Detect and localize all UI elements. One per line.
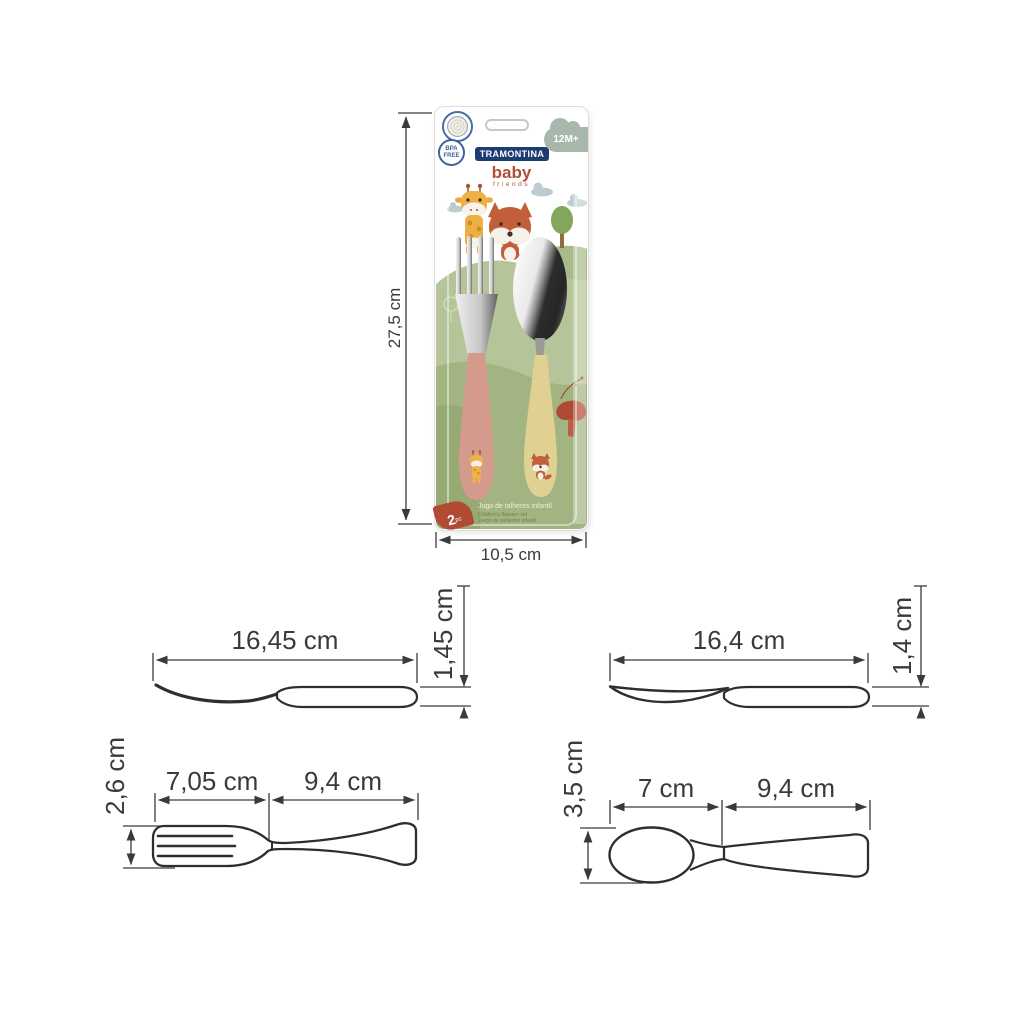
fork-handle-length-label: 9,4 cm (304, 766, 382, 796)
spoon-bowl-length-label: 7 cm (638, 773, 694, 803)
spoon-top-neck-bottom (690, 859, 724, 870)
package-dimensions (398, 113, 586, 548)
spoon-length-label: 16,4 cm (693, 625, 786, 655)
fork-top-outline (153, 823, 416, 866)
fork-side-view: 16,45 cm 1,45 cm (153, 586, 471, 714)
fork-thickness-label: 1,45 cm (428, 588, 458, 681)
package-height-label: 27,5 cm (385, 288, 404, 348)
spoon-side-bowl (610, 687, 728, 703)
fork-side-handle (277, 687, 417, 707)
fork-length-label: 16,45 cm (232, 625, 339, 655)
spoon-thickness-label: 1,4 cm (887, 597, 917, 675)
fork-width-label: 2,6 cm (100, 737, 130, 815)
fork-head-length-label: 7,05 cm (166, 766, 259, 796)
dimension-drawings: 27,5 cm 10,5 cm 16,45 cm 1,45 cm (0, 0, 1024, 1024)
spoon-side-view: 16,4 cm 1,4 cm (610, 586, 929, 714)
spoon-width-label: 3,5 cm (558, 740, 588, 818)
spoon-top-view: 7 cm 9,4 cm 3,5 cm (558, 740, 870, 883)
age-badge-text: 12M+ (553, 134, 578, 145)
fork-top-view: 7,05 cm 9,4 cm 2,6 cm (100, 737, 418, 868)
spoon-top-bowl (610, 828, 694, 883)
spoon-side-handle (724, 687, 869, 707)
fork-side-blade (156, 685, 277, 702)
spoon-top-neck-top (690, 840, 724, 847)
spoon-handle-length-label: 9,4 cm (757, 773, 835, 803)
spoon-top-handle (724, 834, 868, 876)
product-dimension-sheet: BPA FREE TRAMONTINA 12M+ baby friends 2 … (0, 0, 1024, 1024)
package-width-label: 10,5 cm (481, 545, 541, 564)
